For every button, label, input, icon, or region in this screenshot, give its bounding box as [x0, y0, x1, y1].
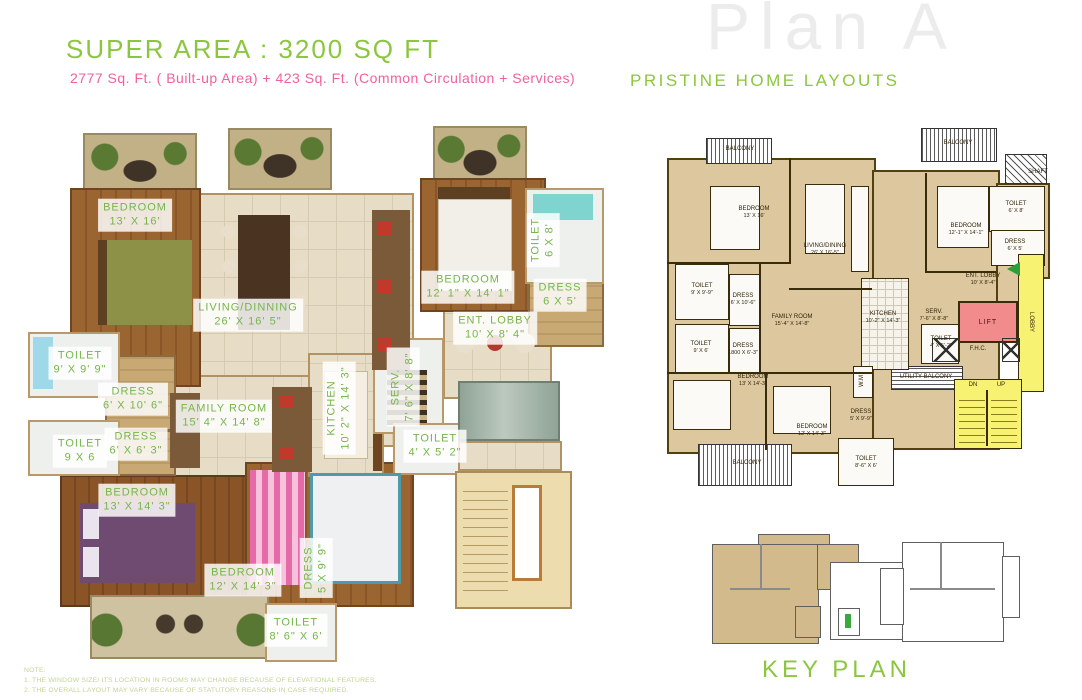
room-label-family: FAMILY ROOM15' 4" X 14' 8"	[176, 400, 272, 433]
room-label-toilet: TOILET9' X 6'	[691, 340, 712, 356]
sofa	[272, 387, 312, 472]
pillow	[83, 547, 99, 577]
room-label-serv: SERV.7' 6" X 8' 8"	[387, 347, 420, 426]
note-heading: NOTE:	[24, 666, 377, 676]
utility-strip	[458, 441, 562, 471]
room-label-bedroom: BEDROOM12' X 14'-3"	[796, 423, 827, 439]
room-label-dress: DRESS1800 X 6'-3"	[728, 342, 758, 358]
key-plan-line	[730, 588, 790, 590]
room-label-bedroom: BEDROOM13' X 14'-3"	[737, 373, 768, 389]
key-plan-line	[940, 542, 942, 588]
room-label-lobby: LOBBY	[1027, 312, 1035, 332]
room-label-bedroom: BEDROOM13' X 16'	[738, 205, 769, 221]
staircase	[455, 471, 572, 609]
sofa	[372, 210, 410, 370]
plan-watermark: Plan A	[706, 0, 1066, 64]
room-label-serv: SERV.7'-6" X 8'-8"	[920, 308, 949, 324]
cushion	[280, 447, 293, 460]
room-label-dress: DRESS6' X 5'	[1005, 238, 1026, 254]
room-label-toilet: TOILET9 X 6	[53, 435, 107, 468]
room-label-dress: DRESS5 X 9' 9"	[300, 538, 333, 598]
bed	[937, 186, 989, 248]
room-label-bedroom: BEDROOM13' X 16'	[98, 199, 172, 232]
balcony-planter	[228, 128, 332, 190]
room-label-toilet: TOILET8'-6" X 6'	[855, 455, 877, 471]
key-plan-title: KEY PLAN	[762, 656, 911, 684]
room-label-dress: DRESS6' X 6' 3"	[105, 428, 168, 461]
bed	[98, 240, 192, 325]
pillow	[83, 509, 99, 539]
room-label-shaft: SHAFT	[1028, 168, 1048, 176]
page-title: SUPER AREA : 3200 SQ FT	[66, 34, 440, 65]
stair-steps	[991, 394, 1017, 444]
room-label-family: FAMILY ROOM15'-4" X 14'-8"	[771, 313, 812, 329]
balcony-planter	[90, 595, 269, 659]
key-plan-unit	[880, 568, 904, 625]
bed	[673, 380, 731, 430]
room-label-toilet: TOILET6 X 8'	[527, 213, 560, 267]
room-label-toilet: TOILET4' X 5'-2"	[930, 335, 952, 351]
room-label-living: LIVING/DINING26' X 16'-5"	[804, 242, 846, 258]
room-label-toilet: TOILET8' 6" X 6'	[265, 614, 328, 647]
stair-dn-label: DN	[969, 381, 978, 389]
balcony-planter	[83, 133, 197, 195]
room-label-dress: DRESS5' X 9'-9"	[850, 408, 872, 424]
lift-box: LIFT	[958, 301, 1018, 343]
key-plan-line	[910, 588, 995, 590]
notes: NOTE: 1. THE WINDOW SIZE/ ITS LOCATION I…	[24, 666, 377, 697]
cushion	[378, 222, 392, 236]
cushion	[378, 280, 392, 294]
stair-well	[512, 485, 542, 581]
note-line: 1. THE WINDOW SIZE/ ITS LOCATION IN ROOM…	[24, 676, 377, 686]
balcony-planter	[433, 126, 527, 186]
room-label-toilet: TOILET9' X 9'-9"	[691, 282, 713, 298]
room-label-balcony: BALCONY	[944, 139, 973, 147]
wall	[667, 262, 791, 264]
wall	[789, 158, 791, 264]
lift-area	[458, 381, 560, 441]
room-label-wm: W.M	[858, 375, 866, 387]
chair	[294, 225, 307, 238]
key-plan-unit	[1002, 556, 1020, 618]
chair	[222, 260, 235, 273]
room-label-toilet: TOILET4' X 5' 2"	[404, 430, 467, 463]
key-plan-line	[760, 544, 762, 588]
stair-divider	[986, 390, 988, 446]
room-label-toilet: TOILET6' X 8'	[1006, 200, 1027, 216]
room-label-dress: DRESS6' X 10'-6"	[731, 292, 756, 308]
room-label-bedroom: BEDROOM12' X 14' 3"	[204, 564, 281, 597]
brand-title: PRISTINE HOME LAYOUTS	[630, 71, 899, 91]
wall	[667, 372, 872, 374]
room-label-living: LIVING/DINNING26' X 16' 5"	[193, 299, 303, 332]
stair-steps	[463, 483, 508, 595]
key-plan-lift-mark	[845, 614, 851, 628]
cushion	[280, 395, 293, 408]
room-label-bedroom: BEDROOM12'-1" X 14'-1"	[949, 222, 984, 238]
room-label-balcony: BALCONY	[733, 459, 762, 467]
fhc-box	[1002, 338, 1020, 362]
room-label-dress: DRESS6' X 10' 6"	[98, 383, 168, 416]
floor-plan-poster: { "header": { "title": "SUPER AREA : 320…	[0, 0, 1082, 700]
room-label-kitchen: KITCHEN10'-2" X 14'-3"	[866, 310, 901, 326]
entrance-arrow-icon	[1007, 262, 1020, 276]
room-label-ent-lobby: ENT. LOBBY10' X 8'-4"	[966, 272, 1001, 288]
key-plan-highlight	[795, 606, 821, 638]
room-label-ent-lobby: ENT. LOBBY10' X 8' 4"	[453, 312, 537, 345]
sofa	[851, 186, 869, 272]
room-label-kitchen: KITCHEN10' 2" X 14' 3"	[323, 361, 356, 454]
rendered-floor-plan: BEDROOM13' X 16' LIVING/DINNING26' X 16'…	[10, 125, 600, 665]
page-subtitle: 2777 Sq. Ft. ( Built-up Area) + 423 Sq. …	[70, 70, 575, 86]
stair-steps	[959, 394, 985, 444]
room-label-toilet: TOILET9' X 9' 9"	[49, 347, 112, 380]
wall	[925, 173, 927, 273]
room-label-bedroom: BEDROOM13' X 14' 3"	[98, 484, 175, 517]
room-label-dress: DRESS6 X 5'	[534, 279, 587, 312]
room-label-fhc: F.H.C.	[970, 345, 987, 353]
note-line: 2. THE OVERALL LAYOUT MAY VARY BECAUSE O…	[24, 686, 377, 696]
stair-block	[954, 379, 1022, 449]
key-plan-unit	[902, 542, 1004, 642]
schematic-floor-plan: LIFT BALCONY BEDROOM13' X 16' LIVING/DIN…	[655, 128, 1055, 508]
wall	[759, 264, 761, 374]
chair	[222, 225, 235, 238]
room-label-utility-balcony: UTILITY BALCONY	[900, 373, 953, 381]
headboard	[438, 187, 510, 199]
key-plan: KEY PLAN	[700, 528, 1040, 698]
stair-up-label: UP	[997, 381, 1005, 389]
wall	[789, 288, 872, 290]
room-label-balcony: BALCONY	[726, 145, 755, 153]
key-plan-stair	[838, 608, 860, 636]
room-label-bedroom: BEDROOM12' 1" X 14' 1"	[421, 271, 514, 304]
chair	[294, 260, 307, 273]
